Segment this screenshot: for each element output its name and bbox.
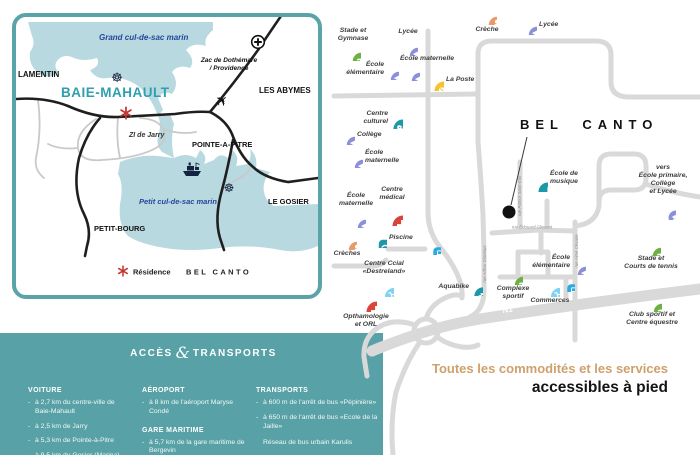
vers-ecoles-label: vers École primaire, Collège et Lycée — [628, 164, 698, 196]
ophtalmologie-orl-icon — [355, 290, 377, 312]
access-item: -à 5,3 km de Pointe-à-Pitre — [28, 437, 128, 446]
stade-courts-tennis-icon — [642, 237, 661, 256]
access-column-2: AÉROPORT-à 8 km de l'aéroport Maryse Con… — [128, 377, 246, 467]
college-label: Collège — [357, 131, 397, 139]
access-item-text: à 2,7 km du centre-ville de Baie-Mahault — [35, 399, 128, 417]
centre-medical-icon — [381, 204, 403, 226]
legend-star-icon — [119, 266, 127, 276]
town-petit-bourg: PETIT-BOURG — [94, 224, 145, 233]
bullet-dash: - — [142, 399, 149, 417]
sea-shapes — [28, 22, 318, 251]
stade-courts-tennis-label: Stade et Courts de tennis — [614, 255, 688, 271]
ecole-musique-label: École de musique — [550, 170, 600, 186]
creche-nord-icon — [478, 6, 497, 25]
commerces-icon — [540, 277, 560, 297]
bullet-dash: - — [28, 437, 35, 446]
title-transports: TRANSPORTS — [193, 348, 277, 359]
town-lamentin: LAMENTIN — [18, 70, 60, 79]
zi-jarry-label: ZI de Jarry — [128, 132, 166, 139]
arret-bus-ouest-icon — [424, 238, 441, 255]
port-wheel-icon-south: ☸ — [224, 181, 235, 195]
access-item-text: à 8 km de l'aéroport Maryse Condé — [149, 399, 246, 417]
bullet-dash: - — [28, 452, 35, 461]
overview-map-graphic: ☸ ☸ ✈ Grand cul-de-sac marin LAMENTIN BA… — [16, 17, 318, 295]
access-item: -à 9,5 km du Gosier (Marina) — [28, 452, 128, 461]
ophtalmologie-orl-label: Opthamologie et ORL — [334, 313, 398, 329]
piscine-icon — [368, 229, 387, 248]
access-panel-title: ACCÈS&TRANSPORTS — [12, 343, 395, 362]
aquabike-label: Aquabike — [425, 283, 469, 291]
residence-dot — [503, 206, 516, 219]
access-item: -à 2,5 km de Jarry — [28, 423, 128, 432]
street-label-patrick-saint-eloi: rue Patrick Saint-Eloi — [517, 175, 522, 216]
lycee-est-label: Lycée — [539, 21, 579, 29]
ecole-maternelle-nord-icon — [401, 62, 420, 81]
stade-gymnase-icon — [342, 42, 361, 61]
centre-culturel-icon — [382, 108, 403, 129]
town-le-gosier: LE GOSIER — [268, 197, 309, 206]
access-item: -à 2,7 km du centre-ville de Baie-Mahaul… — [28, 399, 128, 417]
club-sportif-equestre-icon — [643, 293, 662, 312]
bullet-dash: - — [142, 439, 149, 457]
centre-commercial-destreland-label: Centre Ccial «Destreland» — [352, 260, 416, 276]
street-label-edouard-glissant: rue Édouard Glissant — [512, 225, 553, 230]
section-title: AÉROPORT — [142, 387, 246, 394]
section-title: TRANSPORTS — [256, 387, 383, 394]
ecole-maternelle-ouest-icon — [344, 149, 363, 168]
bullet-dash: - — [256, 399, 263, 408]
residence-pointer-line — [511, 137, 527, 205]
ecole-maternelle-sud-label: École maternelle — [334, 192, 378, 208]
creches-sud-icon — [338, 231, 357, 250]
section-title: GARE MARITIME — [142, 427, 246, 434]
piscine-label: Piscine — [389, 234, 425, 242]
centre-medical-label: Centre médical — [371, 186, 413, 202]
airport-plane-icon: ✈ — [212, 91, 233, 112]
creches-sud-label: Crèches — [327, 250, 367, 258]
access-item: -à 650 m de l'arrêt de bus «Ecole de la … — [256, 414, 383, 432]
aquabike-icon — [464, 277, 483, 296]
access-columns: VOITURE-à 2,7 km du centre-ville de Baie… — [0, 377, 383, 467]
town-baie-mahault: BAIE-MAHAULT — [61, 85, 170, 100]
ampersand-ornament: & — [173, 343, 193, 362]
title-acces: ACCÈS — [130, 348, 173, 359]
access-item: -à 600 m de l'arrêt de bus «Pépinière» — [256, 399, 383, 408]
legend-residence-label: Résidence — [133, 268, 171, 277]
bullet-dash: - — [256, 414, 263, 432]
route-n1 — [372, 289, 700, 351]
access-item: -à 8 km de l'aéroport Maryse Condé — [142, 399, 246, 417]
ecole-elementaire-est-label: École élémentaire — [522, 254, 570, 270]
legend-residence-name: BEL CANTO — [186, 268, 251, 277]
sea-north-label: Grand cul-de-sac marin — [99, 33, 188, 42]
n1-road-label: N1 — [502, 304, 514, 315]
access-item-text: à 9,5 km du Gosier (Marina) — [35, 452, 120, 461]
ecole-maternelle-nord-label: École maternelle — [400, 55, 462, 63]
town-les-abymes: LES ABYMES — [259, 86, 311, 95]
street-label-arthur-gionnius: rue Arthur Gionnius — [482, 245, 487, 283]
creche-nord-label: Crèche — [467, 26, 507, 34]
ecole-musique-icon — [527, 171, 548, 192]
zac-label-line1: Zac de Dothémare — [200, 57, 258, 64]
access-footer: Réseau de bus urbain Karulis — [256, 439, 383, 448]
access-item-text: à 5,3 km de Pointe-à-Pitre — [35, 437, 114, 446]
lycee-nord-label: Lycée — [390, 28, 426, 36]
la-poste-label: La Poste — [446, 76, 488, 84]
section-title: VOITURE — [28, 387, 128, 394]
tagline: Toutes les commodités et les services ac… — [368, 360, 668, 398]
port-wheel-icon-north: ☸ — [111, 70, 123, 85]
access-column-3: TRANSPORTS-à 600 m de l'arrêt de bus «Pé… — [246, 377, 383, 467]
commerces-label: Commerces — [520, 297, 580, 305]
town-pointe-a-pitre: POINTE-A-PITRE — [192, 140, 252, 149]
access-column-1: VOITURE-à 2,7 km du centre-ville de Baie… — [0, 377, 128, 467]
ecole-elementaire-est-icon — [567, 256, 586, 275]
stade-gymnase-label: Stade et Gymnase — [330, 27, 376, 43]
access-item-text: à 600 m de l'arrêt de bus «Pépinière» — [263, 399, 376, 408]
complexe-sportif-label: Complexe sportif — [487, 285, 539, 301]
access-item: -à 5,7 km de la gare maritime de Bergevi… — [142, 439, 246, 457]
street-label-aime-cesaire: rue Aimé Césaire — [574, 234, 579, 268]
ecole-elementaire-ouest-label: École élémentaire — [336, 61, 384, 77]
tagline-line2: accessibles à pied — [368, 378, 668, 399]
overview-map-panel: ☸ ☸ ✈ Grand cul-de-sac marin LAMENTIN BA… — [12, 13, 322, 299]
vers-ecoles-icon — [655, 196, 676, 221]
arret-bus-est-icon — [558, 275, 575, 292]
club-sportif-equestre-label: Club sportif et Centre équestre — [613, 311, 691, 327]
complexe-sportif-icon — [504, 266, 523, 285]
access-transport-panel: ACCÈS&TRANSPORTS VOITURE-à 2,7 km du cen… — [0, 333, 383, 455]
ecole-maternelle-sud-icon — [347, 209, 366, 228]
bullet-dash: - — [28, 399, 35, 417]
access-item-text: à 650 m de l'arrêt de bus «Ecole de la J… — [263, 414, 383, 432]
residence-name-title: BEL CANTO — [520, 117, 670, 132]
ecole-maternelle-ouest-label: École maternelle — [365, 149, 411, 165]
bullet-dash: - — [28, 423, 35, 432]
sea-south-label: Petit cul-de-sac marin — [139, 197, 217, 206]
college-icon — [336, 126, 355, 145]
la-poste-icon — [423, 70, 444, 91]
zac-label-line2: / Providence — [209, 65, 249, 72]
lycee-nord-icon — [399, 37, 418, 56]
centre-commercial-destreland-icon — [374, 277, 394, 297]
tagline-line1: Toutes les commodités et les services — [368, 360, 668, 378]
access-item-text: à 5,7 km de la gare maritime de Bergevin — [149, 439, 246, 457]
lycee-est-icon — [518, 16, 537, 35]
centre-culturel-label: Centre culturel — [346, 110, 388, 126]
access-item-text: à 2,5 km de Jarry — [35, 423, 88, 432]
hospital-cross-icon — [252, 36, 265, 49]
ecole-elementaire-ouest-icon — [380, 61, 399, 80]
